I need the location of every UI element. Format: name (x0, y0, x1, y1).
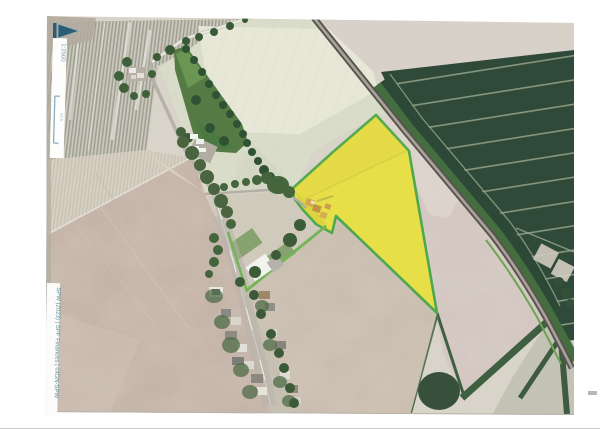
svg-text:62,5: 62,5 (59, 113, 64, 122)
svg-text:1:2500: 1:2500 (59, 43, 66, 62)
